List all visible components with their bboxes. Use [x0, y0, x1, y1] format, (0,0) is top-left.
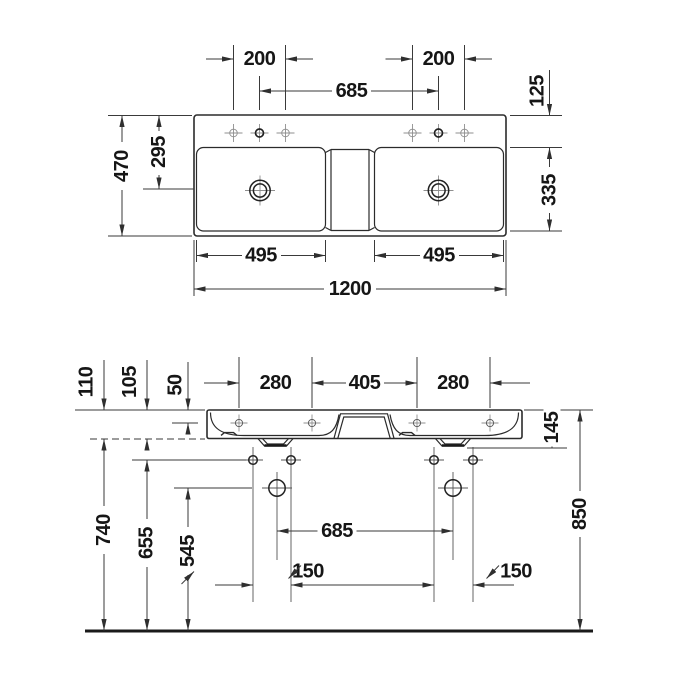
- elevation-dimensions: 280 405 280 110 740 105 655 50 545: [76, 357, 592, 631]
- dim-floor-to-bottom-label: 740: [93, 514, 115, 546]
- dim-floor-to-fixing-label: 655: [136, 527, 158, 559]
- dim-tap-span-right-label: 200: [423, 48, 455, 70]
- center-divider-profile: [334, 414, 394, 439]
- dim-fixing-offset-right-label: 150: [500, 561, 532, 583]
- dim-floor-to-anchor-label: 545: [177, 535, 199, 567]
- elevation-holes: [231, 415, 499, 603]
- elevation-view: 280 405 280 110 740 105 655 50 545: [75, 357, 593, 631]
- plan-drains: [245, 176, 454, 206]
- dim-bowl-width-right-label: 495: [423, 245, 455, 267]
- plan-center-divider: [326, 150, 375, 231]
- dim-fixing-offset-left-label: 150: [292, 561, 324, 583]
- dim-tap-span-left-label: 200: [244, 48, 276, 70]
- dim-edge-height-left-label: 110: [76, 366, 98, 397]
- washbasin-dimension-drawing: 200 200 685 125 335 470 295 495 495: [0, 0, 700, 700]
- plan-dimensions: 200 200 685 125 335 470 295 495 495: [108, 45, 562, 300]
- dim-bowl-width-left-label: 495: [245, 245, 277, 267]
- dim-tap-span-left-label: 280: [260, 372, 292, 394]
- drain-crosshairs: [245, 176, 454, 206]
- dim-tap-span-right-label: 280: [437, 372, 469, 394]
- dim-top-to-tap-axis-label: 50: [165, 374, 187, 396]
- plan-right-bowl: [375, 148, 504, 232]
- dim-back-to-drain-label: 295: [148, 136, 170, 168]
- dim-anchor-centres-label: 685: [321, 520, 353, 542]
- tap-hole-crosshairs: [225, 124, 474, 142]
- plan-view: 200 200 685 125 335 470 295 495 495: [108, 45, 562, 300]
- plan-left-bowl: [197, 148, 326, 232]
- dim-bowl-depth-label: 335: [539, 174, 561, 206]
- hole-centerlines: [253, 447, 473, 602]
- dim-overall-width-label: 1200: [329, 278, 372, 300]
- plan-tap-holes: [225, 124, 474, 142]
- dim-back-to-bowl-label: 125: [527, 75, 549, 107]
- dim-edge-height-mid-label: 105: [119, 366, 141, 398]
- leader-arrow-150-right: [487, 566, 500, 579]
- dim-overall-depth-label: 470: [111, 150, 133, 182]
- dim-body-height-label: 145: [541, 411, 563, 443]
- technical-drawing-page: 200 200 685 125 335 470 295 495 495: [0, 0, 700, 700]
- dim-installation-height-label: 850: [569, 498, 591, 530]
- dim-faucet-centres-label: 685: [336, 80, 368, 102]
- dim-tap-span-centre-label: 405: [349, 372, 381, 394]
- elevation-basin-outline: [207, 410, 522, 446]
- fixing-hole-crosshairs: [243, 460, 483, 488]
